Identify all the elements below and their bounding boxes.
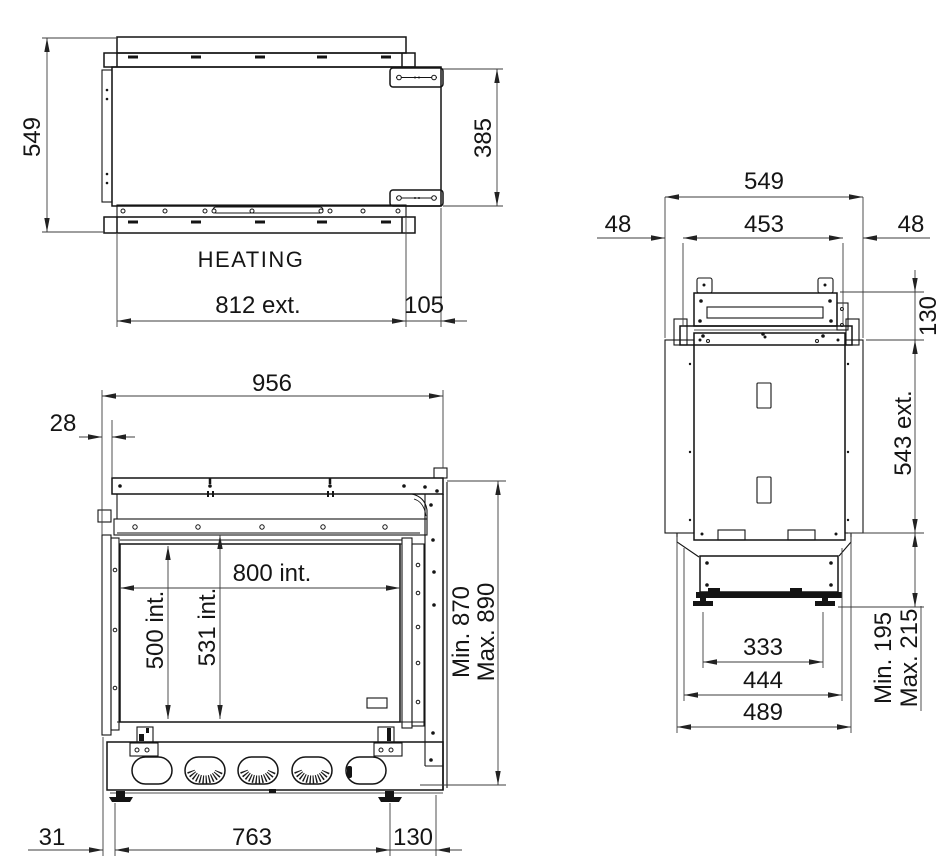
top-view-dimensions: 549 385 HEATING 812 ext. 105 xyxy=(19,38,503,327)
dim-top-depth: 549 xyxy=(19,117,46,157)
side-view-dimensions: 549 453 48 48 130 543 ext. Min. 195 Max.… xyxy=(597,168,942,733)
side-rail-right xyxy=(845,340,863,533)
dim-front-feet-spacing: 763 xyxy=(232,824,272,851)
dim-front-height-min: Min. 870 xyxy=(448,586,475,678)
dim-front-glass-height: 500 int. xyxy=(142,591,169,670)
dim-front-frame-height: 531 int. xyxy=(194,588,221,667)
top-view: 549 385 HEATING 812 ext. 105 xyxy=(19,37,503,327)
dim-side-feet-spacing: 333 xyxy=(743,634,783,661)
dim-front-overall-width: 956 xyxy=(252,370,292,397)
dim-side-top-section: 130 xyxy=(915,296,942,336)
front-view: 956 28 800 int. 500 int. 531 int. Min. 8… xyxy=(28,370,506,856)
dim-top-bracket-width: 385 xyxy=(470,118,497,158)
dim-side-gap-rear: 48 xyxy=(898,211,925,238)
dim-top-right-offset: 105 xyxy=(404,292,444,319)
dim-side-inner-depth: 453 xyxy=(744,211,784,238)
fireplace-dimension-drawing: 549 385 HEATING 812 ext. 105 xyxy=(0,0,950,868)
dim-front-interior-width: 800 int. xyxy=(233,560,312,587)
dim-side-clearance-min: Min. 195 xyxy=(870,612,897,704)
rating-plate xyxy=(367,698,387,708)
dim-side-base-depth: 444 xyxy=(743,667,783,694)
heating-label: HEATING xyxy=(198,247,305,272)
dim-front-height-max: Max. 890 xyxy=(473,583,500,682)
dim-front-right-offset: 130 xyxy=(393,824,433,851)
side-panel xyxy=(694,333,845,540)
technical-drawing-page: 549 385 HEATING 812 ext. 105 xyxy=(0,0,950,868)
adjustable-feet-side xyxy=(693,597,835,606)
base-box xyxy=(700,556,838,592)
side-view-body xyxy=(665,278,863,606)
mounting-bracket-top xyxy=(390,68,443,87)
dim-side-base-outer-depth: 489 xyxy=(743,699,783,726)
convection-box xyxy=(694,293,837,326)
side-rail-left xyxy=(665,340,694,533)
top-view-body xyxy=(102,37,443,233)
dim-front-foot-offset: 31 xyxy=(39,824,66,851)
side-view: 549 453 48 48 130 543 ext. Min. 195 Max.… xyxy=(597,168,942,733)
dim-side-gap-front: 48 xyxy=(605,211,632,238)
adjustable-feet-front xyxy=(109,789,402,802)
mounting-bracket-bottom xyxy=(390,190,443,206)
dim-front-left-offset: 28 xyxy=(50,410,77,437)
vent-openings xyxy=(132,757,386,784)
dim-side-ext-depth: 543 ext. xyxy=(890,390,917,475)
dim-top-width-ext: 812 ext. xyxy=(215,292,300,319)
dim-side-clearance-max: Max. 215 xyxy=(896,609,923,708)
dim-side-overall-depth: 549 xyxy=(744,168,784,195)
